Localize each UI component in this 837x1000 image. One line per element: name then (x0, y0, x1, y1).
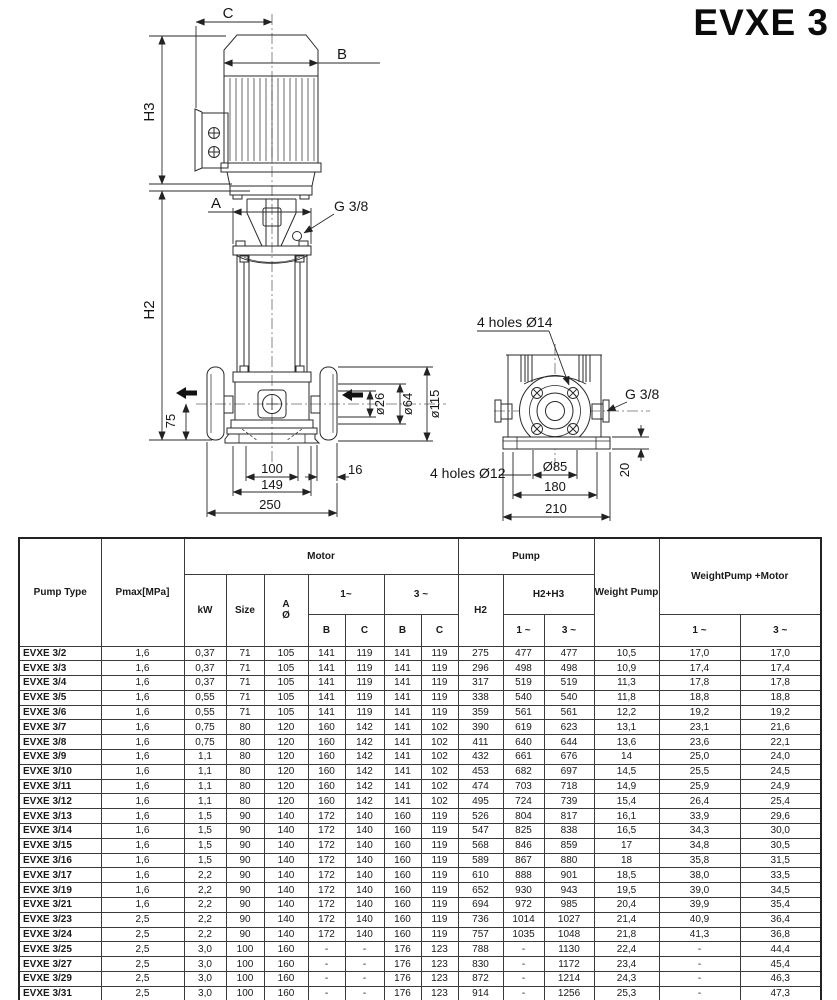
value-cell: 1048 (544, 927, 594, 942)
value-cell: 71 (226, 705, 264, 720)
value-cell: 1,6 (101, 883, 184, 898)
value-cell: 160 (384, 898, 421, 913)
value-cell: 80 (226, 750, 264, 765)
value-cell: 1,6 (101, 750, 184, 765)
value-cell: 172 (308, 824, 345, 839)
dim-label-210: 210 (545, 501, 567, 516)
value-cell: 80 (226, 764, 264, 779)
value-cell: 610 (458, 868, 503, 883)
value-cell: 11,8 (594, 690, 659, 705)
col-motor-3ph: 3 ~ (384, 574, 458, 614)
value-cell: 140 (345, 824, 384, 839)
value-cell: 0,55 (184, 690, 226, 705)
value-cell: 1,6 (101, 824, 184, 839)
value-cell: 142 (345, 764, 384, 779)
value-cell: 930 (503, 883, 544, 898)
value-cell: 90 (226, 868, 264, 883)
dimensions-table-wrapper: Pump Type Pmax[MPa] Motor Pump Weight Pu… (18, 537, 822, 1000)
value-cell: 1,6 (101, 646, 184, 661)
value-cell: 21,6 (740, 720, 821, 735)
value-cell: 1,6 (101, 809, 184, 824)
leader-g38-front (304, 214, 334, 233)
value-cell: 120 (264, 794, 308, 809)
value-cell: 119 (345, 661, 384, 676)
col-pump-group: Pump (458, 538, 594, 574)
value-cell: 22,4 (594, 942, 659, 957)
value-cell: 71 (226, 676, 264, 691)
value-cell: 2,5 (101, 986, 184, 1000)
value-cell: 14 (594, 750, 659, 765)
value-cell: 33,5 (740, 868, 821, 883)
value-cell: 694 (458, 898, 503, 913)
table-row: EVXE 3/51,60,557110514111914111933854054… (19, 690, 821, 705)
value-cell: 17,4 (659, 661, 740, 676)
value-cell: 41,3 (659, 927, 740, 942)
value-cell: 29,6 (740, 809, 821, 824)
value-cell: 119 (421, 824, 458, 839)
value-cell: 19,2 (740, 705, 821, 720)
flange-outer (520, 376, 591, 447)
value-cell: 141 (384, 794, 421, 809)
value-cell: 123 (421, 972, 458, 987)
value-cell: 140 (264, 824, 308, 839)
table-row: EVXE 3/131,61,59014017214016011952680481… (19, 809, 821, 824)
table-row: EVXE 3/191,62,29014017214016011965293094… (19, 883, 821, 898)
value-cell: - (659, 972, 740, 987)
value-cell: 1,1 (184, 750, 226, 765)
table-row: EVXE 3/232,52,29014017214016011973610141… (19, 912, 821, 927)
suction-neck (224, 396, 233, 413)
lantern (247, 199, 296, 246)
value-cell: 140 (264, 927, 308, 942)
value-cell: 140 (345, 898, 384, 913)
value-cell: 160 (308, 750, 345, 765)
value-cell: 102 (421, 779, 458, 794)
value-cell: 120 (264, 750, 308, 765)
value-cell: 80 (226, 779, 264, 794)
value-cell: 90 (226, 927, 264, 942)
value-cell: 160 (384, 927, 421, 942)
value-cell: 25,4 (740, 794, 821, 809)
value-cell: - (308, 942, 345, 957)
value-cell: 1,6 (101, 794, 184, 809)
value-cell: 160 (384, 838, 421, 853)
pump-type-cell: EVXE 3/5 (19, 690, 101, 705)
value-cell: 160 (308, 735, 345, 750)
col-motor-1ph: 1~ (308, 574, 384, 614)
pump-type-cell: EVXE 3/3 (19, 661, 101, 676)
table-row: EVXE 3/81,60,758012016014214110241164064… (19, 735, 821, 750)
motor-base-band (221, 163, 321, 172)
value-cell: 296 (458, 661, 503, 676)
value-cell: 23,4 (594, 957, 659, 972)
table-row: EVXE 3/121,61,18012016014214110249572473… (19, 794, 821, 809)
dim-label-180: 180 (544, 479, 566, 494)
value-cell: - (503, 972, 544, 987)
value-cell: 160 (264, 986, 308, 1000)
value-cell: 2,5 (101, 942, 184, 957)
dim-label-250: 250 (259, 497, 281, 512)
table-row: EVXE 3/141,61,59014017214016011954782583… (19, 824, 821, 839)
dim-label-h3: H3 (141, 102, 158, 121)
value-cell: 859 (544, 838, 594, 853)
value-cell: 90 (226, 838, 264, 853)
dim-h3 (149, 36, 232, 184)
value-cell: 140 (264, 853, 308, 868)
col-h2: H2 (458, 574, 503, 646)
value-cell: 140 (264, 838, 308, 853)
table-row: EVXE 3/101,61,18012016014214110245368269… (19, 764, 821, 779)
value-cell: 120 (264, 764, 308, 779)
value-cell: 172 (308, 898, 345, 913)
value-cell: 20,4 (594, 898, 659, 913)
value-cell: 1,6 (101, 705, 184, 720)
value-cell: 15,4 (594, 794, 659, 809)
pump-type-cell: EVXE 3/12 (19, 794, 101, 809)
value-cell: 724 (503, 794, 544, 809)
col-h2h3: H2+H3 (503, 574, 594, 614)
value-cell: 105 (264, 690, 308, 705)
value-cell: 1214 (544, 972, 594, 987)
pump-type-cell: EVXE 3/31 (19, 986, 101, 1000)
value-cell: 90 (226, 824, 264, 839)
value-cell: 18,5 (594, 868, 659, 883)
value-cell: 1256 (544, 986, 594, 1000)
motor-body (224, 76, 318, 163)
value-cell: 160 (264, 942, 308, 957)
table-row: EVXE 3/272,53,0100160--176123830-117223,… (19, 957, 821, 972)
value-cell: 359 (458, 705, 503, 720)
value-cell: 100 (226, 986, 264, 1000)
value-cell: 25,0 (659, 750, 740, 765)
value-cell: 172 (308, 927, 345, 942)
col-a: A (265, 599, 308, 610)
col-c-1ph: C (345, 614, 384, 646)
value-cell: 160 (384, 868, 421, 883)
value-cell: 3,0 (184, 986, 226, 1000)
value-cell: 25,3 (594, 986, 659, 1000)
value-cell: 682 (503, 764, 544, 779)
value-cell: - (308, 986, 345, 1000)
value-cell: - (503, 957, 544, 972)
value-cell: 13,6 (594, 735, 659, 750)
dim-label-dia115: ø115 (427, 390, 442, 419)
value-cell: 804 (503, 809, 544, 824)
dim-label-b: B (337, 46, 347, 63)
value-cell: 33,9 (659, 809, 740, 824)
dim-label-149: 149 (261, 477, 283, 492)
value-cell: 47,3 (740, 986, 821, 1000)
value-cell: 119 (421, 912, 458, 927)
value-cell: 160 (384, 809, 421, 824)
value-cell: 80 (226, 735, 264, 750)
value-cell: 141 (384, 705, 421, 720)
dim-label-a: A (211, 195, 221, 212)
value-cell: 140 (345, 809, 384, 824)
value-cell: 46,3 (740, 972, 821, 987)
value-cell: 0,75 (184, 735, 226, 750)
value-cell: 172 (308, 838, 345, 853)
value-cell: 119 (421, 883, 458, 898)
pump-type-cell: EVXE 3/21 (19, 898, 101, 913)
col-pump-type: Pump Type (19, 538, 101, 646)
value-cell: 697 (544, 764, 594, 779)
value-cell: 676 (544, 750, 594, 765)
terminal-box-flange (195, 109, 202, 171)
label-g38-front: G 3/8 (334, 198, 368, 214)
value-cell: 317 (458, 676, 503, 691)
value-cell: 338 (458, 690, 503, 705)
value-cell: 474 (458, 779, 503, 794)
value-cell: 140 (264, 883, 308, 898)
value-cell: 644 (544, 735, 594, 750)
value-cell: 1,6 (101, 838, 184, 853)
value-cell: 119 (345, 646, 384, 661)
table-row: EVXE 3/161,61,59014017214016011958986788… (19, 853, 821, 868)
value-cell: 12,2 (594, 705, 659, 720)
value-cell: 119 (421, 809, 458, 824)
value-cell: 34,5 (740, 883, 821, 898)
value-cell: 10,5 (594, 646, 659, 661)
pump-type-cell: EVXE 3/29 (19, 972, 101, 987)
value-cell: 2,2 (184, 868, 226, 883)
value-cell: 17 (594, 838, 659, 853)
value-cell: 71 (226, 690, 264, 705)
value-cell: 142 (345, 779, 384, 794)
table-row: EVXE 3/71,60,758012016014214110239061962… (19, 720, 821, 735)
value-cell: 1,5 (184, 853, 226, 868)
value-cell: 119 (421, 853, 458, 868)
value-cell: 120 (264, 779, 308, 794)
table-row: EVXE 3/111,61,18012016014214110247470371… (19, 779, 821, 794)
value-cell: 25,5 (659, 764, 740, 779)
value-cell: 102 (421, 735, 458, 750)
value-cell: 176 (384, 957, 421, 972)
value-cell: 985 (544, 898, 594, 913)
value-cell: 972 (503, 898, 544, 913)
value-cell: 176 (384, 986, 421, 1000)
value-cell: 34,8 (659, 838, 740, 853)
value-cell: 703 (503, 779, 544, 794)
value-cell: 172 (308, 853, 345, 868)
value-cell: 141 (384, 646, 421, 661)
value-cell: 825 (503, 824, 544, 839)
value-cell: 141 (384, 690, 421, 705)
value-cell: 119 (421, 690, 458, 705)
value-cell: 160 (384, 853, 421, 868)
value-cell: 172 (308, 883, 345, 898)
value-cell: 100 (226, 957, 264, 972)
value-cell: 547 (458, 824, 503, 839)
value-cell: 846 (503, 838, 544, 853)
value-cell: 24,0 (740, 750, 821, 765)
value-cell: 1,1 (184, 779, 226, 794)
value-cell: 119 (421, 868, 458, 883)
value-cell: 661 (503, 750, 544, 765)
value-cell: 1130 (544, 942, 594, 957)
value-cell: 561 (544, 705, 594, 720)
value-cell: 2,2 (184, 883, 226, 898)
value-cell: 142 (345, 720, 384, 735)
value-cell: 119 (421, 927, 458, 942)
value-cell: 3,0 (184, 957, 226, 972)
value-cell: 477 (544, 646, 594, 661)
value-cell: 1,1 (184, 794, 226, 809)
value-cell: 71 (226, 646, 264, 661)
value-cell: 105 (264, 661, 308, 676)
value-cell: 40,9 (659, 912, 740, 927)
value-cell: 100 (226, 942, 264, 957)
value-cell: 80 (226, 794, 264, 809)
pump-type-cell: EVXE 3/24 (19, 927, 101, 942)
value-cell: 1,6 (101, 868, 184, 883)
value-cell: 160 (264, 972, 308, 987)
value-cell: 880 (544, 853, 594, 868)
col-dia: Ø (265, 610, 308, 621)
pump-type-cell: EVXE 3/13 (19, 809, 101, 824)
motor-base-taper (227, 172, 315, 186)
value-cell: 140 (345, 883, 384, 898)
value-cell: 18,8 (659, 690, 740, 705)
pump-type-cell: EVXE 3/25 (19, 942, 101, 957)
value-cell: 24,5 (740, 764, 821, 779)
value-cell: 561 (503, 705, 544, 720)
col-weight-1ph: 1 ~ (659, 614, 740, 646)
col-h2h3-3ph: 3 ~ (544, 614, 594, 646)
value-cell: 1,6 (101, 676, 184, 691)
pump-type-cell: EVXE 3/6 (19, 705, 101, 720)
pump-type-cell: EVXE 3/27 (19, 957, 101, 972)
value-cell: 867 (503, 853, 544, 868)
value-cell: 1,5 (184, 809, 226, 824)
value-cell: 119 (345, 690, 384, 705)
value-cell: 390 (458, 720, 503, 735)
value-cell: 17,0 (740, 646, 821, 661)
value-cell: 39,0 (659, 883, 740, 898)
value-cell: 757 (458, 927, 503, 942)
value-cell: 18 (594, 853, 659, 868)
value-cell: 123 (421, 986, 458, 1000)
value-cell: 0,37 (184, 646, 226, 661)
value-cell: 160 (264, 957, 308, 972)
dim-label-20: 20 (617, 463, 632, 477)
pump-type-cell: EVXE 3/15 (19, 838, 101, 853)
value-cell: 619 (503, 720, 544, 735)
col-size: Size (226, 574, 264, 646)
value-cell: 141 (384, 779, 421, 794)
value-cell: 17,8 (740, 676, 821, 691)
value-cell: 90 (226, 883, 264, 898)
value-cell: 498 (503, 661, 544, 676)
value-cell: 1,6 (101, 853, 184, 868)
value-cell: - (345, 942, 384, 957)
value-cell: - (308, 957, 345, 972)
table-row: EVXE 3/312,53,0100160--176123914-125625,… (19, 986, 821, 1000)
value-cell: 90 (226, 853, 264, 868)
value-cell: 17,4 (740, 661, 821, 676)
value-cell: 652 (458, 883, 503, 898)
value-cell: 141 (384, 676, 421, 691)
value-cell: 540 (544, 690, 594, 705)
datasheet-page: EVXE 3 (0, 0, 837, 1000)
value-cell: 498 (544, 661, 594, 676)
value-cell: 141 (384, 750, 421, 765)
value-cell: 160 (308, 720, 345, 735)
value-cell: 105 (264, 676, 308, 691)
value-cell: 44,4 (740, 942, 821, 957)
value-cell: 160 (384, 824, 421, 839)
table-row: EVXE 3/41,60,377110514111914111931751951… (19, 676, 821, 691)
value-cell: 36,8 (740, 927, 821, 942)
value-cell: 90 (226, 809, 264, 824)
leader-g38-side (607, 402, 627, 411)
value-cell: 34,3 (659, 824, 740, 839)
table-row: EVXE 3/151,61,59014017214016011956884685… (19, 838, 821, 853)
motor-flange (230, 186, 312, 195)
value-cell: 140 (264, 809, 308, 824)
value-cell: 1,6 (101, 690, 184, 705)
dim-label-dia26: ø26 (372, 393, 387, 415)
value-cell: - (659, 957, 740, 972)
pump-type-cell: EVXE 3/11 (19, 779, 101, 794)
value-cell: 142 (345, 750, 384, 765)
value-cell: 30,0 (740, 824, 821, 839)
pump-type-cell: EVXE 3/8 (19, 735, 101, 750)
value-cell: 14,5 (594, 764, 659, 779)
value-cell: 495 (458, 794, 503, 809)
value-cell: 25,9 (659, 779, 740, 794)
value-cell: 1,6 (101, 898, 184, 913)
pump-front-view (149, 14, 446, 517)
value-cell: 640 (503, 735, 544, 750)
value-cell: - (659, 942, 740, 957)
table-row: EVXE 3/91,61,180120160142141102432661676… (19, 750, 821, 765)
value-cell: 16,5 (594, 824, 659, 839)
value-cell: 788 (458, 942, 503, 957)
value-cell: 102 (421, 720, 458, 735)
value-cell: 123 (421, 942, 458, 957)
value-cell: 10,9 (594, 661, 659, 676)
value-cell: 718 (544, 779, 594, 794)
value-cell: 739 (544, 794, 594, 809)
table-row: EVXE 3/171,62,29014017214016011961088890… (19, 868, 821, 883)
value-cell: 141 (384, 735, 421, 750)
value-cell: 141 (308, 690, 345, 705)
value-cell: 160 (384, 912, 421, 927)
dim-label-h2: H2 (141, 300, 158, 319)
value-cell: 21,4 (594, 912, 659, 927)
value-cell: 102 (421, 764, 458, 779)
value-cell: - (345, 957, 384, 972)
value-cell: 102 (421, 750, 458, 765)
value-cell: 30,5 (740, 838, 821, 853)
technical-drawing: C B H3 H2 A G 3/8 75 ø26 ø64 ø115 100 14… (0, 0, 837, 532)
pump-type-cell: EVXE 3/10 (19, 764, 101, 779)
col-weight-pump-motor: WeightPump +Motor (659, 538, 821, 614)
value-cell: 2,2 (184, 898, 226, 913)
value-cell: 141 (384, 764, 421, 779)
value-cell: 2,5 (101, 927, 184, 942)
label-g38-side: G 3/8 (625, 386, 659, 402)
value-cell: 176 (384, 972, 421, 987)
value-cell: 17,8 (659, 676, 740, 691)
motor-cap (224, 35, 318, 76)
value-cell: 1035 (503, 927, 544, 942)
value-cell: 888 (503, 868, 544, 883)
col-h2h3-1ph: 1 ~ (503, 614, 544, 646)
value-cell: 71 (226, 661, 264, 676)
value-cell: 140 (345, 853, 384, 868)
